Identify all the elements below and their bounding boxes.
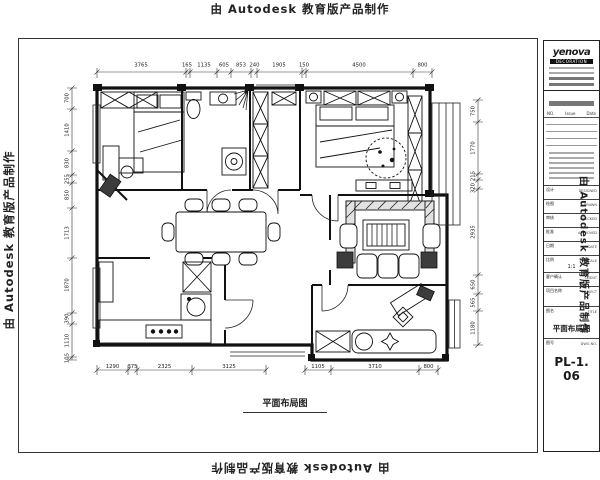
- revision-row: [546, 125, 597, 132]
- dim-label: 1410: [65, 123, 71, 137]
- col-issue: Issue: [565, 111, 575, 116]
- bed-double-icon: [316, 105, 394, 167]
- fridge-icon: [183, 262, 211, 292]
- dim-label: 255: [65, 174, 71, 184]
- master-bedroom-furniture: [306, 91, 422, 208]
- dim-label: 1180: [471, 321, 477, 335]
- dim-label: 1135: [197, 63, 210, 69]
- notes-line: [549, 152, 594, 154]
- ceiling-fan-icon: [306, 91, 321, 103]
- dim-label: 2325: [158, 364, 171, 370]
- fine-print-line: [549, 77, 594, 80]
- col-date: Date: [586, 111, 596, 116]
- tb-label: 设计: [546, 187, 554, 193]
- dimension-left: 700 1410 830 255 850 1713 1870 390 1110 …: [65, 86, 78, 364]
- tb-en: DWG NO.: [581, 342, 597, 346]
- window-left-upper: [93, 105, 100, 163]
- wardrobe-icon: [101, 92, 157, 108]
- cad-sheet: { "watermark": { "text": "由 Autodesk 教育版…: [0, 0, 600, 480]
- tb-label: 图号: [546, 340, 554, 346]
- entry-door-bottom: [230, 352, 305, 356]
- dim-label: 390: [65, 313, 71, 324]
- toilet-icon: [186, 92, 201, 119]
- dim-label: 800: [423, 364, 434, 370]
- tb-label: 客户确认: [546, 274, 562, 280]
- dim-label: 3125: [222, 364, 235, 370]
- tb-label: 审核: [546, 215, 554, 221]
- tv-cabinet-icon: [356, 180, 412, 191]
- dim-label: 240: [249, 63, 260, 69]
- dining-furniture: [162, 199, 280, 265]
- dining-table-icon: [176, 212, 266, 252]
- dim-label: 1105: [311, 364, 324, 370]
- living-room-furniture: [337, 201, 440, 278]
- dim-label: 1770: [471, 141, 477, 155]
- dim-label: 4500: [352, 63, 366, 69]
- project-name-blur: [549, 101, 594, 106]
- dim-label: 2935: [471, 225, 477, 238]
- dim-label: 1110: [65, 333, 71, 347]
- closet-furniture: [253, 92, 296, 188]
- dim-label: 165: [182, 63, 192, 69]
- dim-label: 320: [471, 182, 477, 193]
- notes-line: [549, 172, 594, 174]
- notes-line: [549, 167, 594, 169]
- window-right-lower: [449, 300, 460, 348]
- bed-single-icon: [134, 92, 184, 172]
- side-table-icon: [421, 252, 437, 268]
- dim-label: 565: [471, 297, 477, 307]
- autodesk-watermark-right: 由 Autodesk 教育版产品制作: [578, 176, 593, 334]
- dim-label: 3710: [368, 364, 382, 370]
- dim-label: 850: [65, 189, 71, 200]
- tb-label: 批准: [546, 229, 554, 235]
- stove-icon: [146, 325, 182, 338]
- desk-chair-icon: [393, 307, 413, 327]
- dim-label: 650: [471, 279, 477, 290]
- dim-label: 1290: [106, 364, 120, 370]
- coffee-table-icon: [363, 220, 409, 250]
- sink-icon: [210, 92, 236, 105]
- dim-label: 1905: [272, 63, 285, 69]
- laptop-icon: [417, 286, 435, 301]
- drawing-number: PL-1. 06: [544, 352, 599, 386]
- dim-label: 1870: [65, 278, 71, 292]
- fine-print-line: [549, 83, 594, 86]
- dim-label: 3765: [134, 63, 147, 69]
- yenova-logo: yenova: [544, 47, 599, 58]
- tb-label: 绘图: [546, 201, 554, 207]
- dim-label: 750: [471, 105, 477, 116]
- tb-row-dwgno: 图号 DWG NO.: [544, 338, 599, 352]
- washing-machine-icon: [222, 148, 246, 175]
- fine-print-line: [549, 72, 594, 74]
- kitchen-cabinet: [99, 262, 113, 302]
- kitchen-sink-icon: [181, 294, 211, 320]
- bedroom2-furniture: [99, 92, 184, 197]
- kitchen-furniture: [99, 262, 211, 343]
- notes-line: [549, 162, 594, 164]
- shower-icon: [234, 90, 248, 110]
- dimension-bottom: 1290 375 2325 3125 1105 3710 800: [95, 364, 441, 375]
- tb-label: 比例: [546, 257, 554, 263]
- tb-label: 图名: [546, 308, 554, 314]
- revision-table-header: NO. Issue Date: [544, 110, 599, 118]
- yenova-logo-sub: DECORATION: [550, 59, 593, 64]
- dim-label: 700: [65, 92, 71, 103]
- dim-label: 605: [219, 63, 229, 69]
- dim-label: 830: [65, 157, 71, 168]
- dim-label: 1713: [65, 226, 71, 239]
- dim-label: 215: [471, 171, 477, 181]
- bathroom-furniture: [186, 90, 248, 175]
- ceiling-fan-icon: [392, 91, 407, 103]
- dim-label: 105: [65, 353, 71, 363]
- dim-label: 150: [299, 63, 310, 69]
- revision-row: [546, 132, 597, 139]
- dim-label: 853: [236, 63, 246, 69]
- revision-row: [546, 118, 597, 125]
- dim-label: 375: [127, 364, 137, 370]
- revision-row: [546, 139, 597, 146]
- fine-print-line: [549, 67, 594, 69]
- col-no: NO.: [547, 111, 554, 116]
- study-furniture: [316, 284, 436, 353]
- notes-line: [549, 157, 594, 159]
- cabinet-icon: [316, 331, 350, 352]
- dim-label: 800: [417, 63, 428, 69]
- tb-label: 项目名称: [546, 288, 562, 294]
- tb-label: 日期: [546, 243, 554, 249]
- dimension-top: 3765 165 1135 605 853 240 1905 150 4500 …: [95, 63, 435, 79]
- divider: [544, 90, 599, 91]
- dimension-right: 750 1770 215 320 2935 650 565 1180: [471, 98, 484, 348]
- plan-caption: 平面布局图: [243, 396, 327, 413]
- daybed-icon: [352, 330, 436, 353]
- bay-window-right: [432, 103, 460, 225]
- side-table-icon: [337, 252, 353, 268]
